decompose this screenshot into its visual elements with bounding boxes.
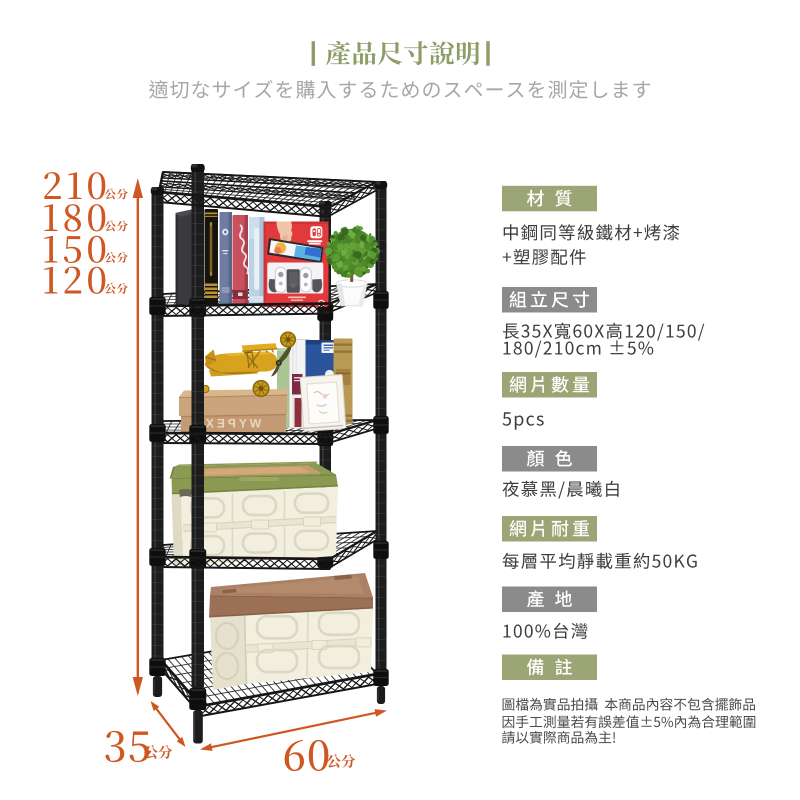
svg-text:WYPEX: WYPEX [203,417,261,431]
